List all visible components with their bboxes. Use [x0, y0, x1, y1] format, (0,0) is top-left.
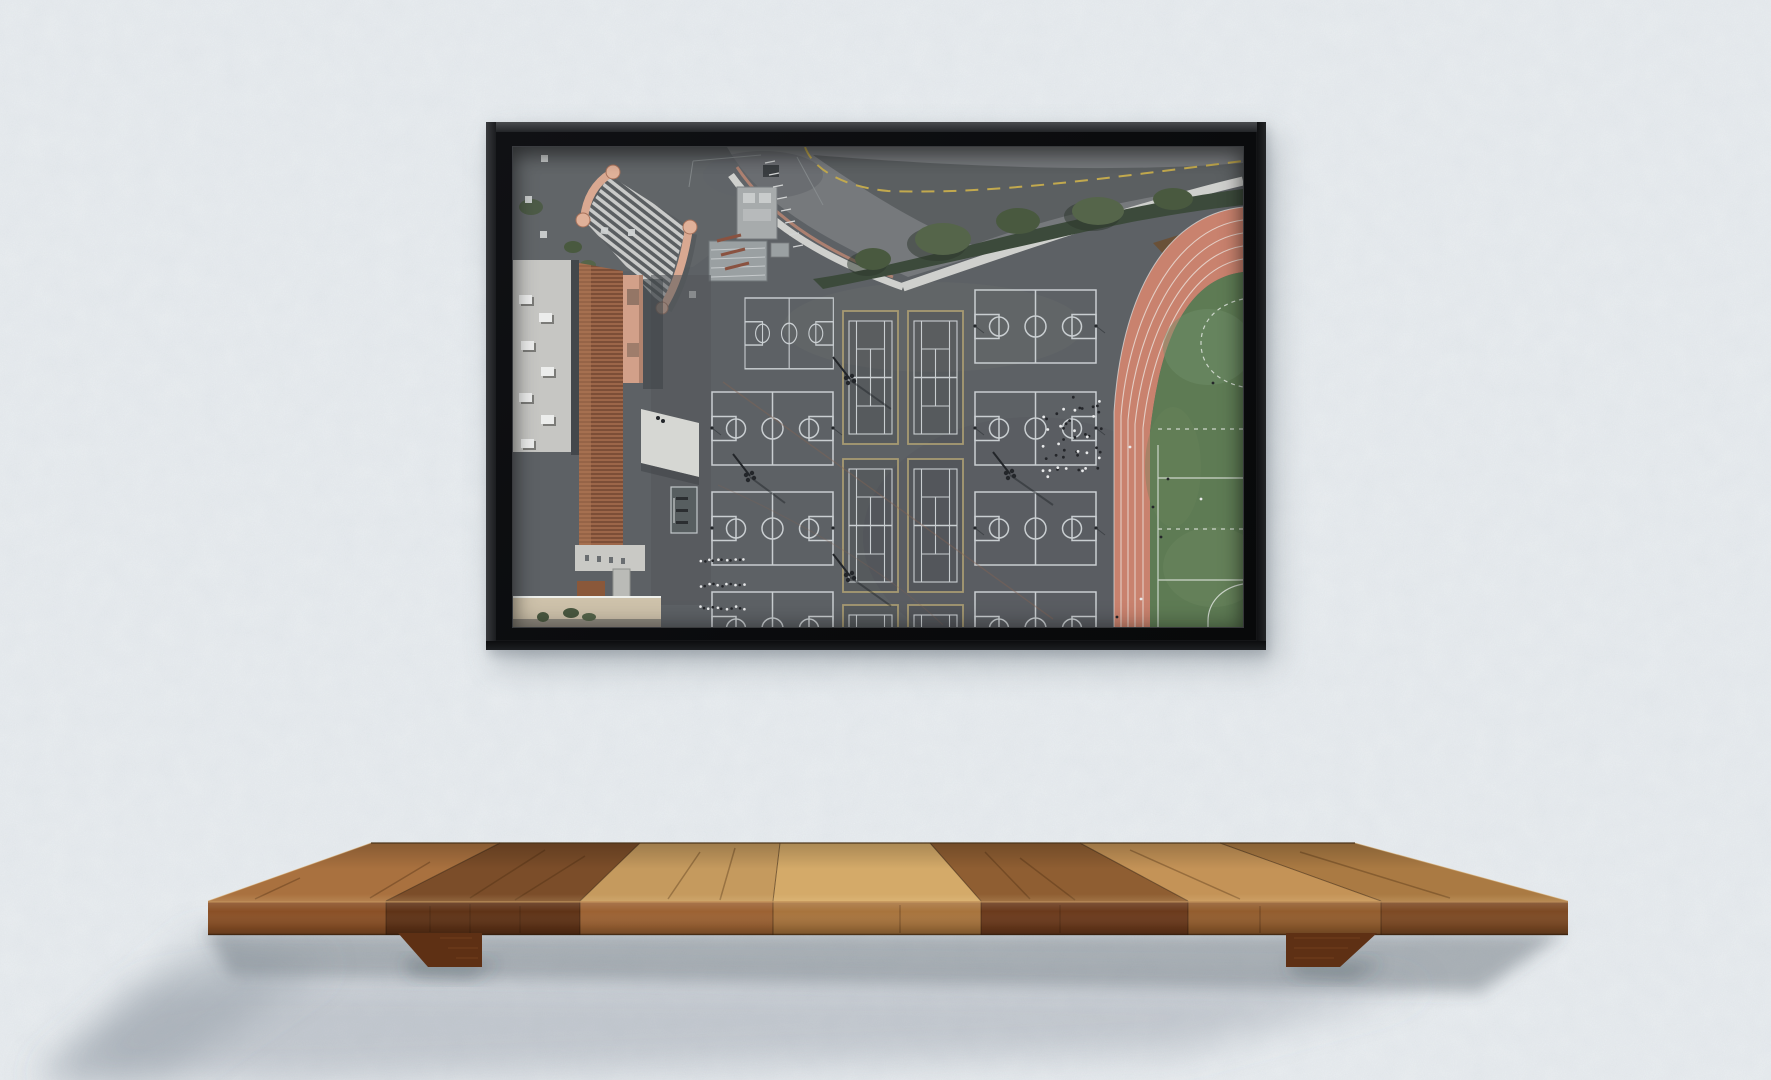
tennis-court: [908, 459, 963, 592]
courts: [712, 290, 1096, 627]
hoop-posts: [710, 324, 1097, 529]
ribbed-roof: [579, 263, 623, 557]
bracket-grain: [440, 938, 1360, 958]
sidewalk-straight: [903, 181, 1243, 287]
shelf-front-face: [208, 901, 1568, 935]
asphalt-base: [513, 147, 1243, 627]
road-worn-patch: [813, 155, 1243, 245]
amphitheater: [576, 165, 697, 314]
aerial-artwork: [513, 147, 1243, 627]
shelf-plank: [1080, 843, 1381, 901]
wall-towers: [576, 165, 697, 314]
tennis-court: [908, 311, 963, 444]
shelf-plank: [208, 843, 500, 901]
plaza-wall-left: [584, 173, 611, 219]
bracket-shadow: [404, 958, 500, 980]
white-sloped-roof: [641, 409, 699, 477]
plaza-wall-right: [663, 228, 689, 307]
picture-frame: [486, 122, 1266, 650]
shelf-bracket-left: [398, 933, 482, 967]
road: [653, 147, 1243, 277]
shelf-brackets: [398, 933, 1384, 980]
tennis-court: [843, 459, 898, 592]
green-field: [1150, 272, 1243, 627]
mulch-strip: [1153, 215, 1243, 259]
basketball-court: [712, 492, 833, 565]
basketball-court: [712, 392, 833, 465]
asphalt-light-patch: [783, 282, 1083, 372]
frame-bottom-face: [486, 641, 1266, 650]
stair-ticks: [765, 161, 803, 247]
shelf-plank: [1220, 843, 1568, 901]
shelf-bracket-right: [1286, 933, 1377, 967]
curb-salmon: [737, 167, 893, 277]
bracket-shadow: [1288, 958, 1384, 980]
benches: [717, 235, 749, 269]
shelf-left-edge: [208, 843, 371, 901]
tennis-court: [843, 605, 898, 627]
asphalt-dark-patch: [863, 417, 1203, 627]
shelf-plank: [773, 843, 981, 901]
field-worn: [1145, 309, 1243, 607]
aerial-photo: [513, 147, 1243, 627]
crowd-dots: [1042, 396, 1103, 478]
lower-wall-band: [513, 597, 661, 619]
plaza-structures: [525, 155, 823, 318]
hedge-band: [813, 189, 1243, 289]
road-patch: [703, 151, 823, 199]
flat-roof: [513, 260, 571, 452]
basketball-court: [975, 392, 1096, 465]
brown-container: [577, 581, 605, 611]
amphitheater-steps: [583, 175, 687, 307]
frame-top-face: [486, 122, 1266, 132]
ac-units: [519, 295, 556, 450]
school-building: [513, 260, 711, 627]
frame-left-face: [486, 122, 496, 650]
basketball-court: [975, 592, 1096, 627]
mini-court: [671, 487, 697, 533]
sidewalk-curve: [731, 175, 903, 287]
tennis-court: [908, 605, 963, 627]
basketball-court: [975, 492, 1096, 565]
asphalt-crack: [718, 485, 943, 625]
fences: [689, 155, 823, 205]
basketball-court: [975, 290, 1096, 363]
painted-squares: [525, 155, 696, 318]
track-lanes: [1121, 220, 1243, 627]
front-seams: [386, 901, 1381, 935]
basketball-court: [745, 298, 833, 369]
queue-dots: [699, 558, 746, 610]
running-track: [1114, 207, 1243, 627]
field-markings: [1158, 299, 1243, 627]
straggler-dots: [1116, 382, 1215, 619]
light-poles: [656, 324, 1105, 606]
trees: [519, 188, 1193, 276]
scene: [0, 0, 1771, 1080]
track-outer-line: [1114, 207, 1243, 627]
pink-facade: [623, 275, 643, 383]
shelf-plank: [386, 843, 640, 901]
shelf-plank: [580, 843, 780, 901]
wood-grain: [255, 848, 1450, 900]
plank-seams: [386, 843, 1381, 901]
plaza-ground: [513, 147, 803, 279]
tennis-court: [843, 311, 898, 444]
road-center-line: [805, 147, 1243, 192]
shelf-plank: [930, 843, 1188, 901]
asphalt-crack: [723, 382, 1053, 619]
basketball-court: [712, 592, 833, 627]
endgrain-lines: [430, 904, 1260, 934]
shelf-top-surface: [208, 843, 1568, 901]
shelf-wall-shadow: [30, 930, 1565, 1080]
shelf-right-edge: [1355, 843, 1568, 901]
frame-right-face: [1257, 122, 1266, 650]
